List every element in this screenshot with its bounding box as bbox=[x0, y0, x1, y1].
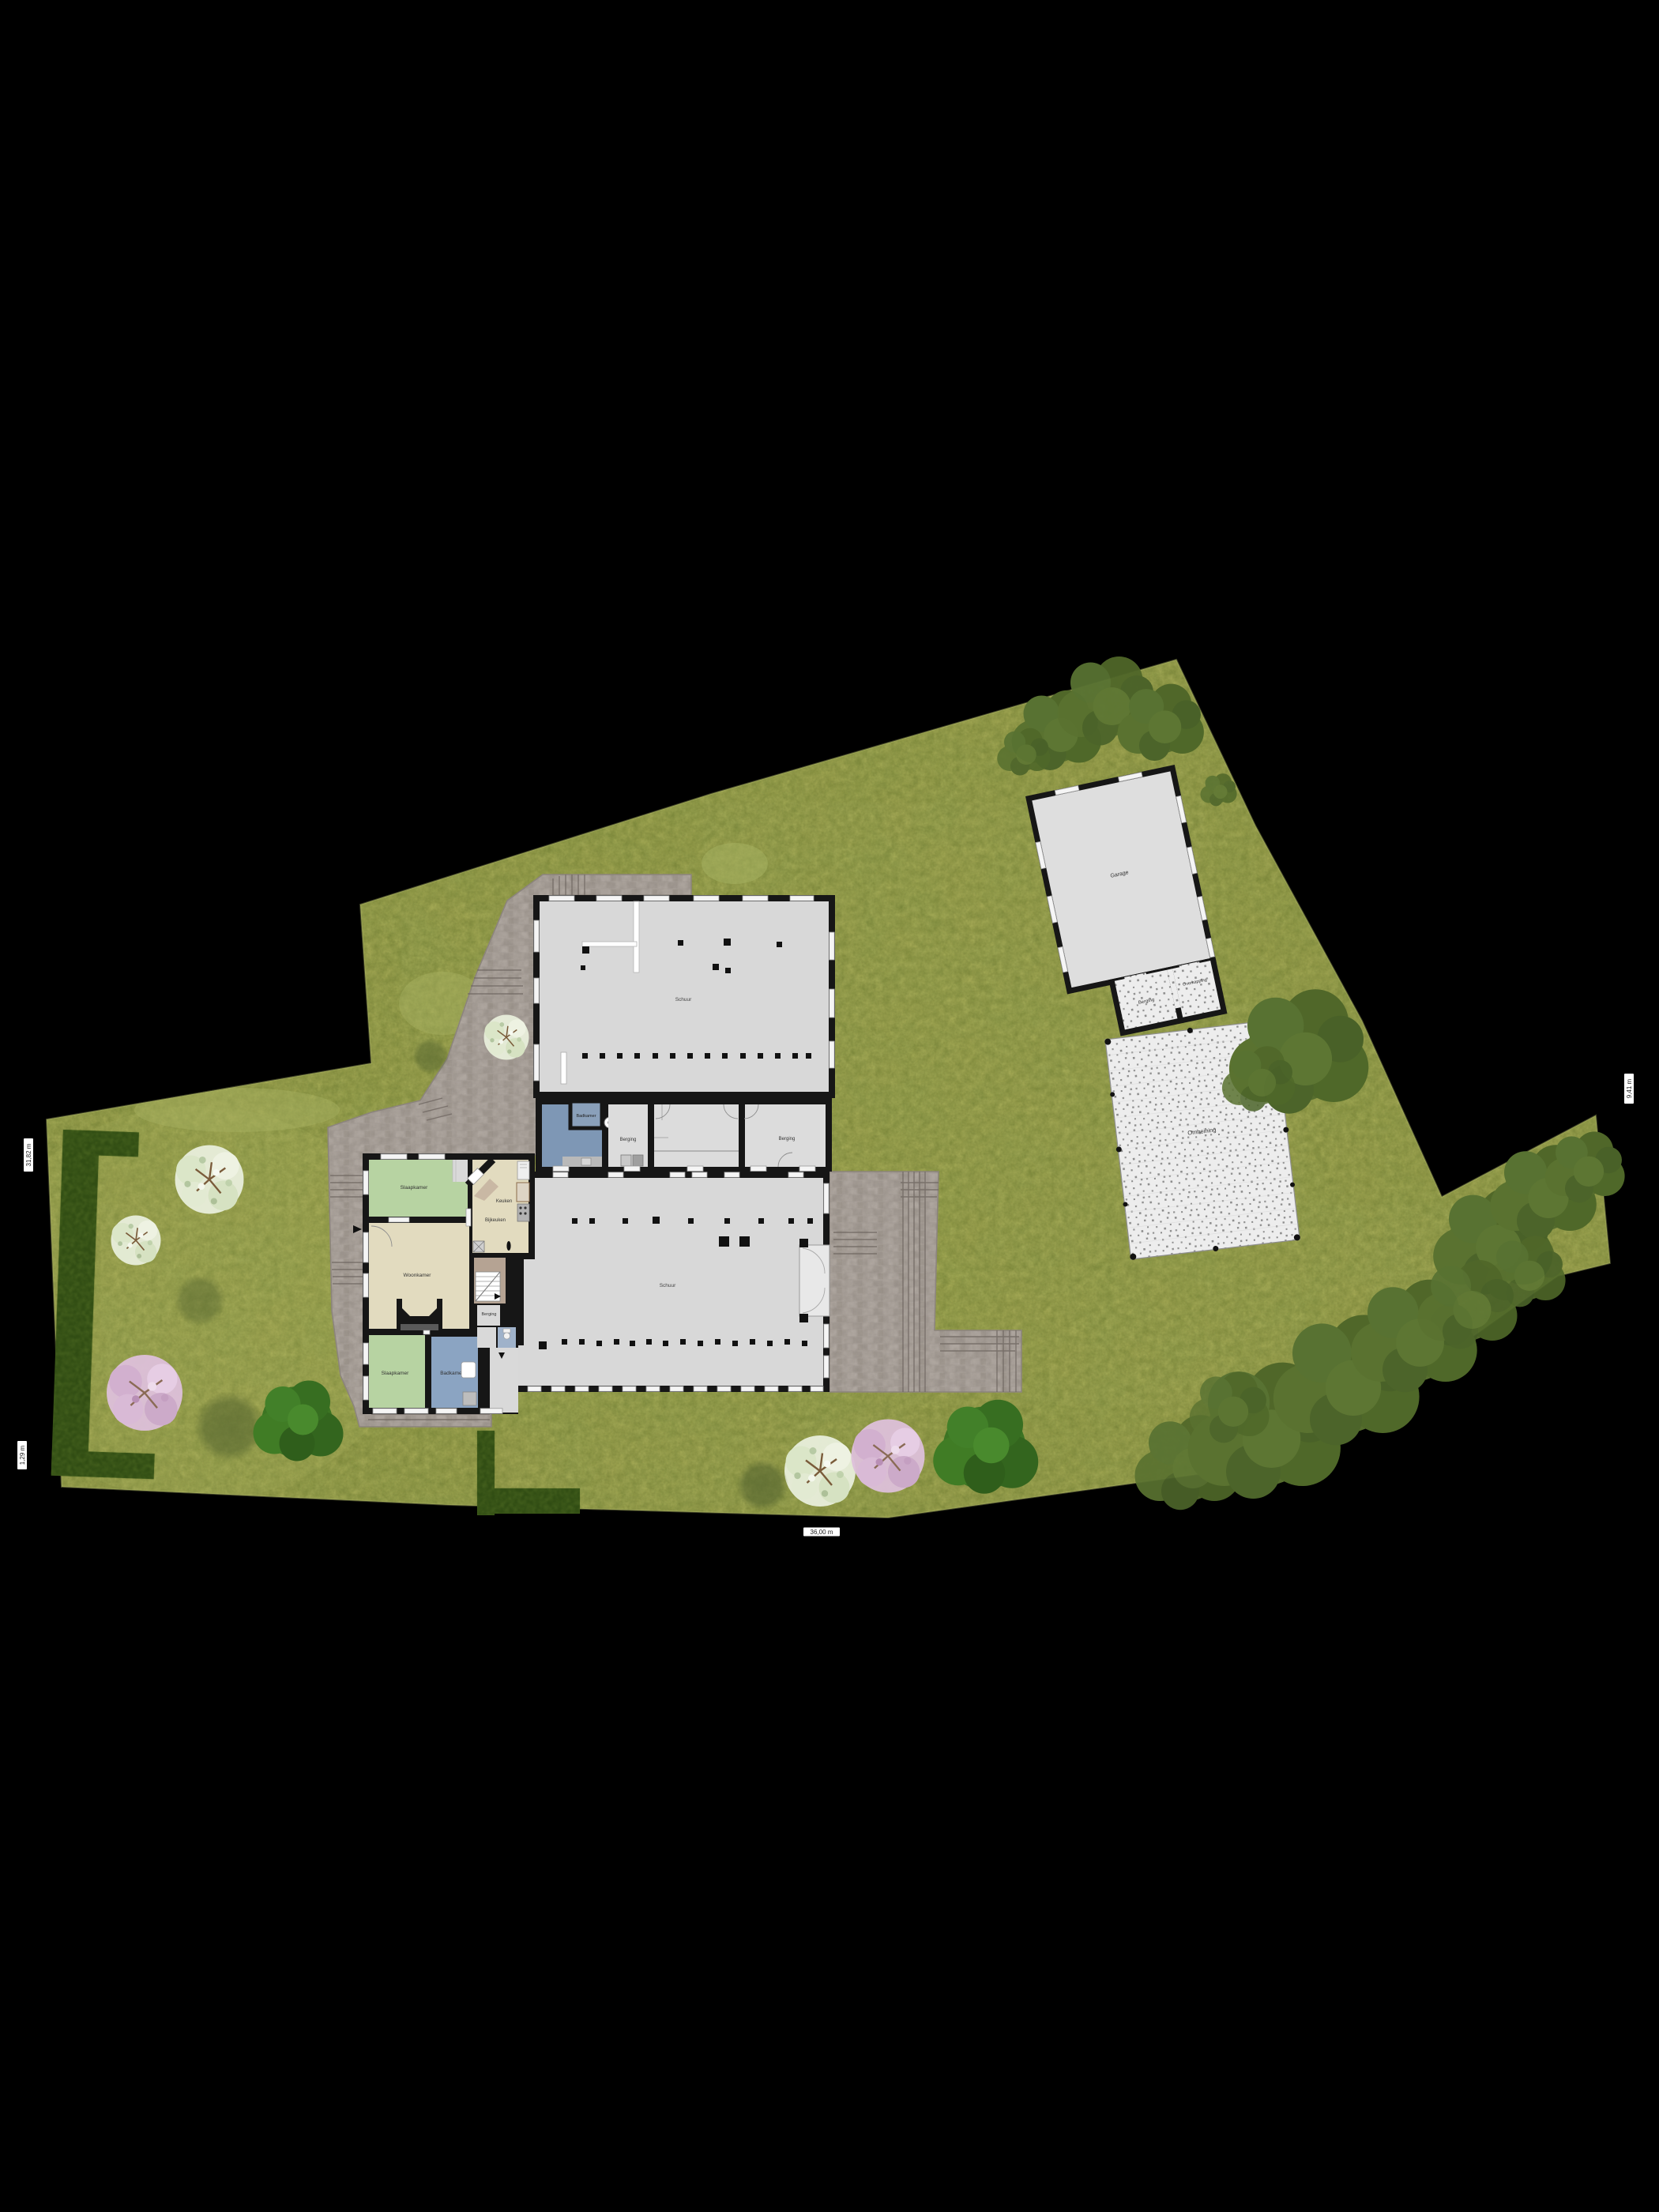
svg-text:Schuur: Schuur bbox=[660, 1283, 676, 1288]
svg-text:Berging: Berging bbox=[482, 1312, 497, 1317]
svg-text:36,00 m: 36,00 m bbox=[811, 1529, 833, 1536]
svg-text:Schuur: Schuur bbox=[675, 997, 692, 1003]
svg-text:Woonkamer: Woonkamer bbox=[404, 1273, 432, 1278]
svg-text:Badkamer: Badkamer bbox=[440, 1371, 464, 1376]
svg-text:Slaapkamer: Slaapkamer bbox=[401, 1185, 429, 1191]
svg-text:9,41 m: 9,41 m bbox=[1626, 1078, 1633, 1098]
svg-text:Slaapkamer: Slaapkamer bbox=[382, 1371, 410, 1376]
svg-text:31,82 m: 31,82 m bbox=[25, 1143, 32, 1166]
svg-text:Keuken: Keuken bbox=[496, 1199, 512, 1204]
svg-text:Bijkeuken: Bijkeuken bbox=[485, 1218, 506, 1223]
svg-text:Berging: Berging bbox=[620, 1138, 637, 1142]
svg-text:Badkamer: Badkamer bbox=[576, 1114, 596, 1119]
svg-text:Berging: Berging bbox=[779, 1137, 796, 1142]
svg-text:1,29 m: 1,29 m bbox=[19, 1445, 26, 1465]
